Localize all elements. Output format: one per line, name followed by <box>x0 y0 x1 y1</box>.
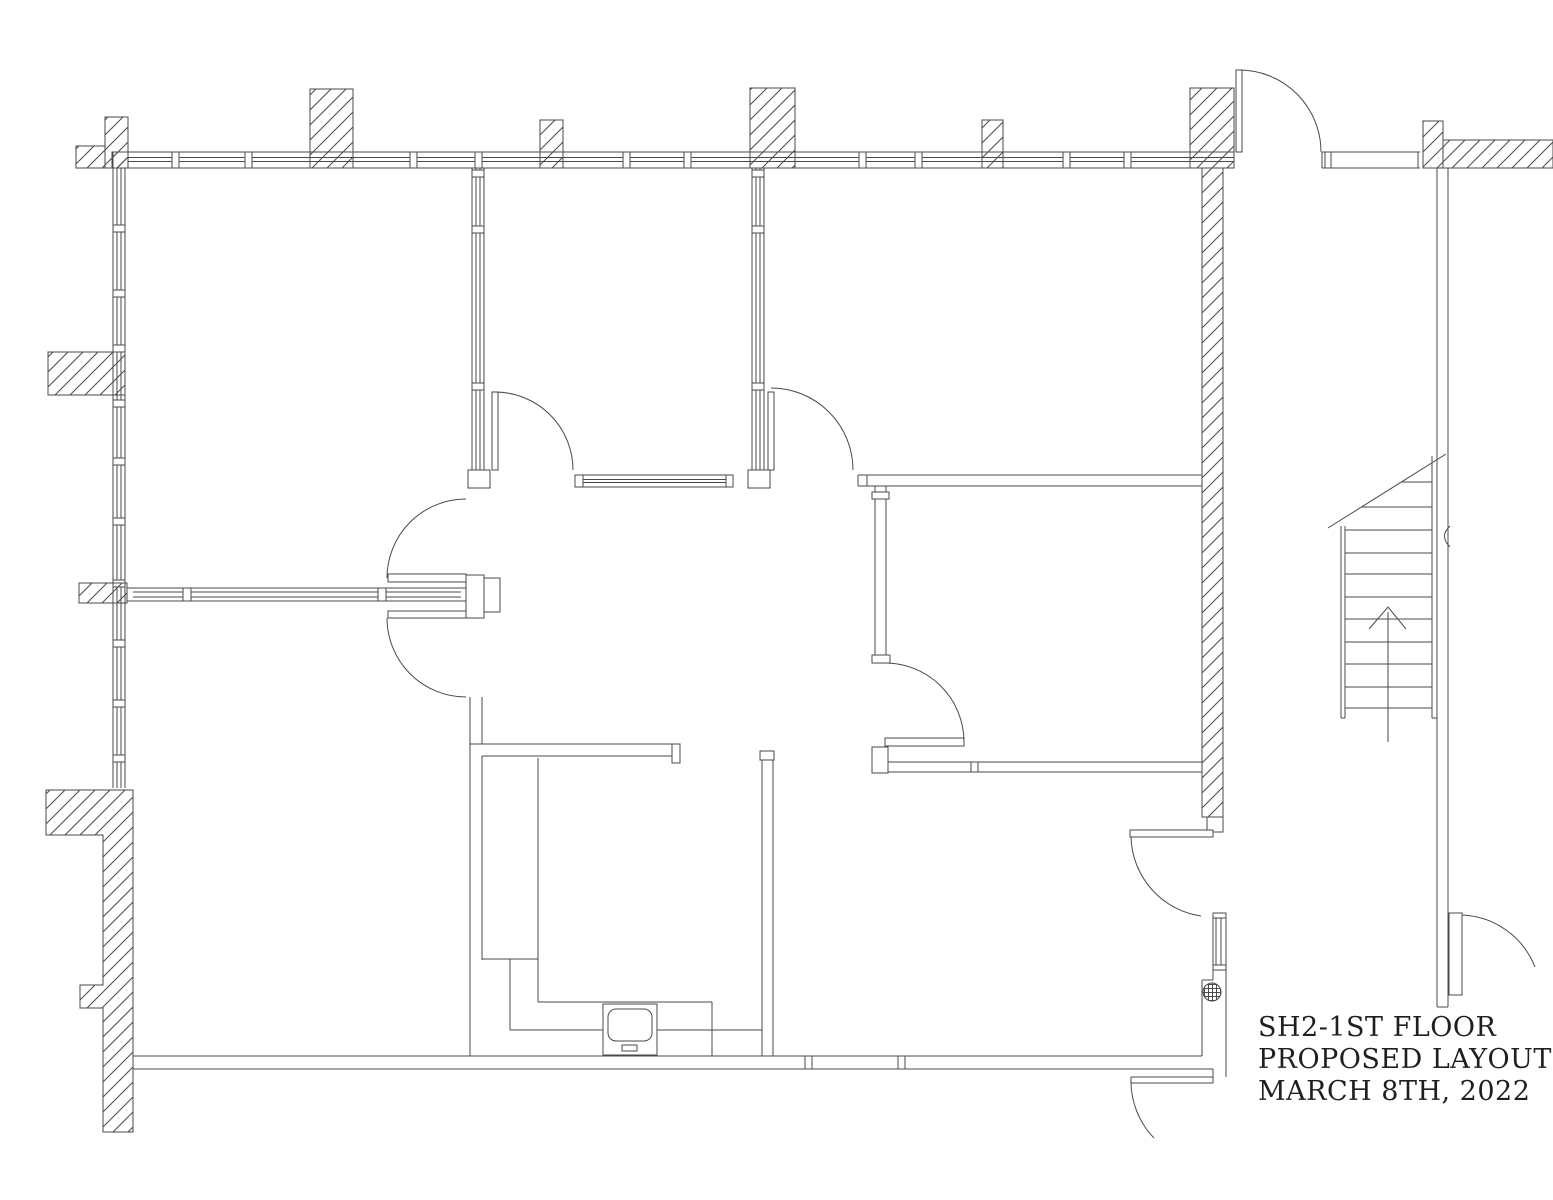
stair-up-arrow <box>1369 607 1406 742</box>
door-top-right-entry <box>1236 70 1321 152</box>
door-leaf <box>1130 830 1213 837</box>
sink-fixture <box>603 1004 657 1055</box>
door-leaf <box>1236 70 1242 152</box>
partition-left-of-middle-room <box>468 168 490 488</box>
door-swing-arc <box>387 618 466 697</box>
left-wall-pier <box>48 352 125 395</box>
right-masonry-wall <box>1202 168 1226 1077</box>
left-wall-pier <box>79 583 127 603</box>
double-swing-door-upper <box>387 499 466 582</box>
column <box>982 120 1003 168</box>
title-block: SH2-1ST FLOOR PROPOSED LAYOUT MARCH 8TH,… <box>1258 1012 1552 1107</box>
title-line-2: PROPOSED LAYOUT <box>1258 1044 1552 1075</box>
floor-plan-canvas: SH2-1ST FLOOR PROPOSED LAYOUT MARCH 8TH,… <box>0 0 1553 1200</box>
door-bottom-right-exterior <box>1131 1077 1213 1138</box>
left-bottom-masonry-wall <box>46 790 133 1132</box>
door-swing-arc <box>883 663 964 742</box>
door-leaf <box>1449 913 1462 995</box>
floor-plan-svg: SH2-1ST FLOOR PROPOSED LAYOUT MARCH 8TH,… <box>0 0 1553 1200</box>
door-swing-arc <box>387 499 466 578</box>
wall-below-right-room <box>888 762 1202 772</box>
door-swing-arc <box>1131 837 1201 916</box>
bottom-wall-tick <box>805 1056 812 1069</box>
door-swing-arc <box>495 392 573 470</box>
bottom-wall-tick <box>898 1056 905 1069</box>
door-swing-arc <box>1239 70 1321 152</box>
door-post <box>466 575 484 618</box>
corner-pier <box>76 117 128 168</box>
door-leaf <box>768 392 774 470</box>
door-leaf <box>885 738 964 746</box>
sink-counter <box>603 1004 657 1055</box>
left-window-wall <box>113 152 125 788</box>
title-line-1: SH2-1ST FLOOR <box>1258 1012 1497 1043</box>
floor-grille-symbol <box>1203 983 1221 1001</box>
door-stair-corridor <box>1449 913 1535 995</box>
stairs <box>1328 454 1446 742</box>
door-leaf <box>388 574 466 582</box>
column <box>750 88 795 168</box>
entry-sidelite-window <box>1213 913 1226 970</box>
column <box>310 89 353 168</box>
door-post <box>484 578 500 612</box>
wall-below-top-right-room <box>858 475 1202 486</box>
column <box>1190 88 1234 168</box>
top-right-masonry <box>1423 121 1553 168</box>
door-leaf <box>492 392 498 470</box>
door-swing-arc <box>771 388 853 470</box>
door-right-room <box>883 663 964 746</box>
door-leaf <box>1131 1077 1213 1083</box>
column <box>540 120 563 168</box>
door-right-exterior <box>1130 830 1213 916</box>
double-swing-door-lower <box>387 611 466 697</box>
wall-below-middle-room <box>575 475 733 487</box>
wall-break-mark <box>1445 526 1451 547</box>
title-line-3: MARCH 8TH, 2022 <box>1258 1076 1530 1107</box>
partition-between-right-rooms <box>872 486 890 773</box>
stair-break-line <box>1328 454 1446 528</box>
top-window-wall <box>113 152 1234 168</box>
door-swing-arc <box>1131 1080 1154 1138</box>
structural-columns <box>48 88 1234 603</box>
stair-corridor-wall <box>1437 168 1450 1007</box>
door-swing-arc <box>1462 915 1535 967</box>
top-right-wall-segment <box>1322 152 1420 168</box>
door-middle-room-right <box>768 388 853 470</box>
door-middle-room-left <box>492 392 573 470</box>
left-wall-mullions <box>113 225 125 762</box>
bottom-wall <box>133 1056 1213 1077</box>
door-leaf <box>388 611 466 618</box>
partition-right-of-middle-room <box>748 168 770 488</box>
